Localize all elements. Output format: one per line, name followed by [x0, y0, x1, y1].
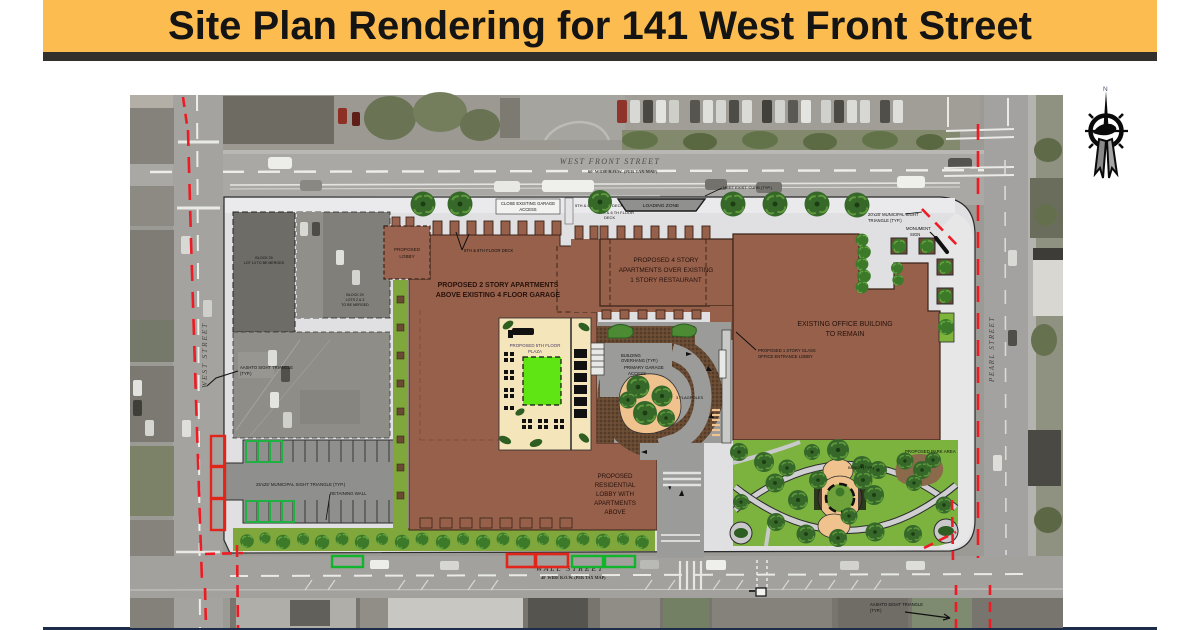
- svg-text:ACCESS: ACCESS: [519, 207, 536, 212]
- svg-text:5TH & 6TH FLOOR DECK: 5TH & 6TH FLOOR DECK: [464, 248, 514, 253]
- svg-text:N: N: [1103, 86, 1108, 93]
- svg-text:ACCESS: ACCESS: [628, 371, 646, 376]
- svg-text:AASHTO SIGHT TRIANGLE: AASHTO SIGHT TRIANGLE: [240, 365, 293, 370]
- svg-text:3 FLAGPOLES: 3 FLAGPOLES: [676, 395, 703, 400]
- svg-text:ABOVE: ABOVE: [604, 509, 625, 516]
- svg-text:PROPOSED 1 STORY GLASS: PROPOSED 1 STORY GLASS: [758, 348, 816, 353]
- svg-text:20′x20′ MUNICIPAL SIGHT: 20′x20′ MUNICIPAL SIGHT: [868, 212, 919, 217]
- svg-text:OVERHANG (TYP.): OVERHANG (TYP.): [621, 358, 658, 363]
- svg-text:1 STORY RESTAURANT: 1 STORY RESTAURANT: [630, 277, 702, 284]
- svg-text:BENCH (TYP.): BENCH (TYP.): [848, 465, 875, 470]
- svg-text:AASHTO SIGHT TRIANGLE: AASHTO SIGHT TRIANGLE: [870, 602, 923, 607]
- svg-text:PROPOSED: PROPOSED: [394, 247, 421, 252]
- svg-text:(TYP.): (TYP.): [240, 371, 252, 376]
- svg-text:TO REMAIN: TO REMAIN: [826, 331, 865, 338]
- svg-text:BLOCK 29: BLOCK 29: [255, 256, 272, 260]
- svg-text:CLOSE EXISTING GARAGE: CLOSE EXISTING GARAGE: [501, 201, 555, 206]
- svg-text:PROPOSED 2 STORY APARTMENTS: PROPOSED 2 STORY APARTMENTS: [438, 282, 559, 289]
- svg-text:(TYP.): (TYP.): [870, 608, 882, 613]
- svg-text:WEST FRONT STREET: WEST FRONT STREET: [560, 157, 660, 166]
- svg-text:MEET EXIST. CURB (TYP.): MEET EXIST. CURB (TYP.): [723, 185, 773, 190]
- svg-text:MONUMENT: MONUMENT: [906, 226, 931, 231]
- svg-text:LOBBY: LOBBY: [399, 254, 414, 259]
- svg-text:PROPOSED 5TH FLOOR: PROPOSED 5TH FLOOR: [510, 343, 561, 348]
- svg-text:PLAZA: PLAZA: [528, 349, 542, 354]
- svg-text:LOTS 2 & 3: LOTS 2 & 3: [346, 298, 365, 302]
- svg-text:WALL STREET: WALL STREET: [536, 564, 604, 573]
- svg-text:WEST STREET: WEST STREET: [200, 322, 209, 388]
- svg-text:APARTMENTS: APARTMENTS: [594, 500, 636, 507]
- svg-text:60′ WIDE R.O.W. (PER TAX MAP): 60′ WIDE R.O.W. (PER TAX MAP): [588, 169, 658, 174]
- svg-text:SIGN: SIGN: [910, 232, 920, 237]
- svg-text:PRIMARY GARAGE: PRIMARY GARAGE: [624, 365, 664, 370]
- svg-text:TRIANGLE (TYP.): TRIANGLE (TYP.): [868, 218, 902, 223]
- svg-text:RESIDENTIAL: RESIDENTIAL: [595, 482, 636, 489]
- svg-text:PROPOSED 4 STORY: PROPOSED 4 STORY: [633, 257, 699, 264]
- svg-text:TO BE MERGED: TO BE MERGED: [341, 303, 369, 307]
- svg-text:PROPOSED: PROPOSED: [597, 473, 633, 480]
- svg-text:25′x25′ MUNICIPAL SIGHT TRIANG: 25′x25′ MUNICIPAL SIGHT TRIANGLE (TYP.): [256, 482, 346, 487]
- svg-text:BLOCK 29: BLOCK 29: [346, 293, 363, 297]
- svg-text:PROPOSED PARK AREA: PROPOSED PARK AREA: [905, 449, 956, 454]
- svg-text:PEARL STREET: PEARL STREET: [988, 316, 996, 383]
- svg-text:40′ WIDE R.O.W. (PER TAX MAP): 40′ WIDE R.O.W. (PER TAX MAP): [541, 575, 606, 580]
- svg-text:EXISTING OFFICE BUILDING: EXISTING OFFICE BUILDING: [797, 321, 892, 328]
- svg-text:LOT 14 TO BE MERGED: LOT 14 TO BE MERGED: [244, 261, 285, 265]
- svg-text:DECK: DECK: [604, 215, 615, 220]
- svg-text:OFFICE ENTRANCE LOBBY: OFFICE ENTRANCE LOBBY: [758, 354, 813, 359]
- svg-text:LOBBY WITH: LOBBY WITH: [596, 491, 634, 498]
- svg-text:LOADING ZONE: LOADING ZONE: [643, 203, 679, 209]
- svg-text:RETAINING WALL: RETAINING WALL: [330, 491, 367, 496]
- svg-text:APARTMENTS OVER EXISTING: APARTMENTS OVER EXISTING: [619, 267, 714, 274]
- svg-text:ABOVE EXISTING 4 FLOOR GARAGE: ABOVE EXISTING 4 FLOOR GARAGE: [436, 292, 561, 299]
